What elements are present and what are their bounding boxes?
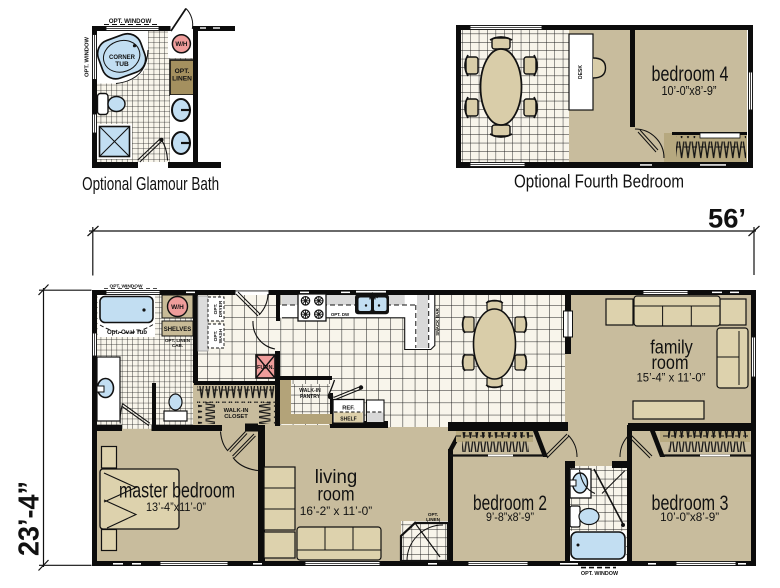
- svg-text:FURN.: FURN.: [257, 365, 275, 371]
- svg-text:10’-0”x8’-9”: 10’-0”x8’-9”: [662, 84, 717, 98]
- svg-text:CAB.: CAB.: [172, 343, 183, 348]
- svg-text:PANTRY: PANTRY: [300, 394, 321, 400]
- svg-text:WASH: WASH: [218, 328, 224, 343]
- svg-text:LINEN: LINEN: [172, 76, 192, 83]
- svg-text:bedroom 4: bedroom 4: [652, 63, 729, 86]
- svg-text:56’: 56’: [708, 204, 746, 234]
- svg-text:SNACK BAR: SNACK BAR: [435, 308, 440, 336]
- svg-text:23’-4”: 23’-4”: [14, 481, 46, 556]
- svg-text:OPT. DW: OPT. DW: [331, 312, 350, 317]
- svg-text:SHELVES: SHELVES: [164, 327, 192, 333]
- svg-text:OPT. WINDOW: OPT. WINDOW: [85, 37, 91, 77]
- svg-text:SHELF: SHELF: [340, 417, 356, 423]
- svg-text:CLOSET: CLOSET: [224, 414, 248, 420]
- svg-text:CORNER: CORNER: [109, 54, 135, 61]
- svg-text:TUB: TUB: [115, 61, 129, 68]
- svg-text:OPT.: OPT.: [175, 68, 190, 75]
- svg-text:13’-4”x11’-0”: 13’-4”x11’-0”: [146, 502, 206, 514]
- svg-text:OPT. WINDOW: OPT. WINDOW: [581, 571, 619, 577]
- svg-text:Optional Fourth Bedroom: Optional Fourth Bedroom: [514, 171, 684, 191]
- svg-text:15’-4” x 11’-0”: 15’-4” x 11’-0”: [637, 373, 706, 385]
- svg-text:LINEN: LINEN: [426, 517, 440, 522]
- svg-text:OPT. WINDOW: OPT. WINDOW: [109, 18, 152, 25]
- svg-text:DESK: DESK: [578, 65, 584, 79]
- svg-text:W/H: W/H: [175, 41, 188, 48]
- svg-text:9’-8”x8’-9”: 9’-8”x8’-9”: [486, 512, 534, 524]
- svg-text:master bedroom: master bedroom: [119, 480, 235, 503]
- svg-text:room: room: [318, 485, 355, 506]
- svg-text:16’-2” x 11’-0”: 16’-2” x 11’-0”: [300, 506, 373, 518]
- svg-text:REF.: REF.: [342, 406, 355, 412]
- svg-text:W/H: W/H: [171, 304, 184, 311]
- svg-text:Optional Glamour Bath: Optional Glamour Bath: [82, 174, 219, 194]
- svg-text:10’-0”x8’-9”: 10’-0”x8’-9”: [660, 512, 719, 524]
- svg-text:DRYER: DRYER: [218, 300, 224, 317]
- svg-text:room: room: [652, 353, 689, 374]
- svg-text:Opt. Oval Tub: Opt. Oval Tub: [107, 329, 147, 336]
